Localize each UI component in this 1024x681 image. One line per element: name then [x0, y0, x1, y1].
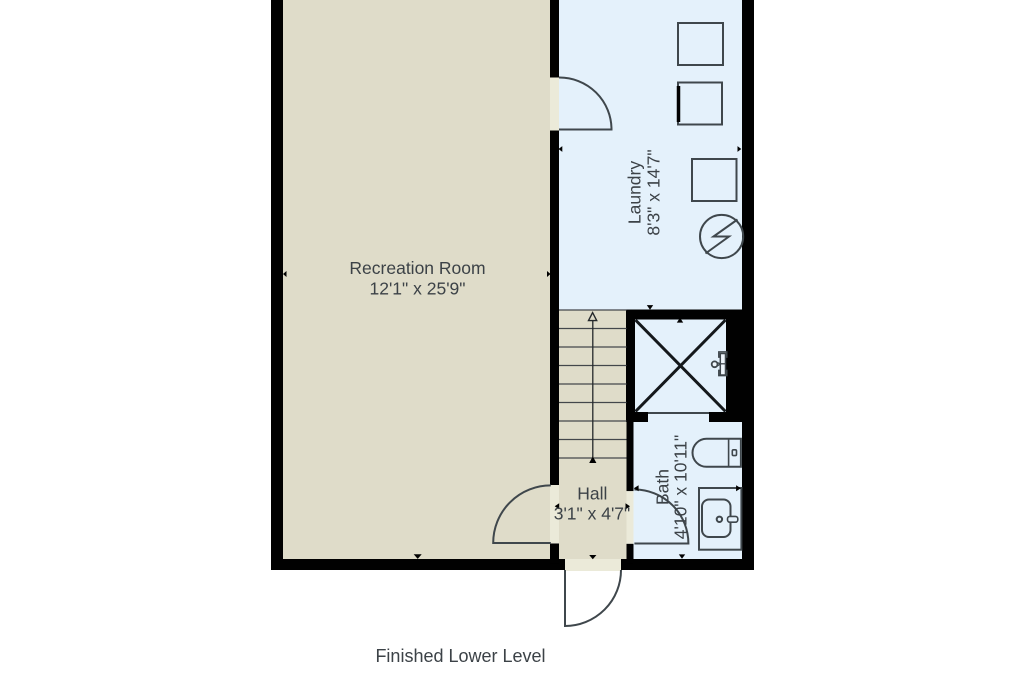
- svg-text:3'1" x 4'7": 3'1" x 4'7": [554, 504, 631, 524]
- svg-text:8'3" x 14'7": 8'3" x 14'7": [644, 149, 664, 235]
- svg-text:4'10" x 10'11": 4'10" x 10'11": [670, 435, 690, 539]
- svg-text:Laundry: Laundry: [624, 161, 644, 224]
- svg-text:Hall: Hall: [577, 484, 607, 504]
- svg-text:Recreation Room: Recreation Room: [349, 258, 485, 278]
- svg-text:Finished Lower Level: Finished Lower Level: [375, 646, 545, 666]
- svg-text:Bath: Bath: [652, 469, 672, 505]
- svg-text:12'1" x 25'9": 12'1" x 25'9": [370, 279, 466, 299]
